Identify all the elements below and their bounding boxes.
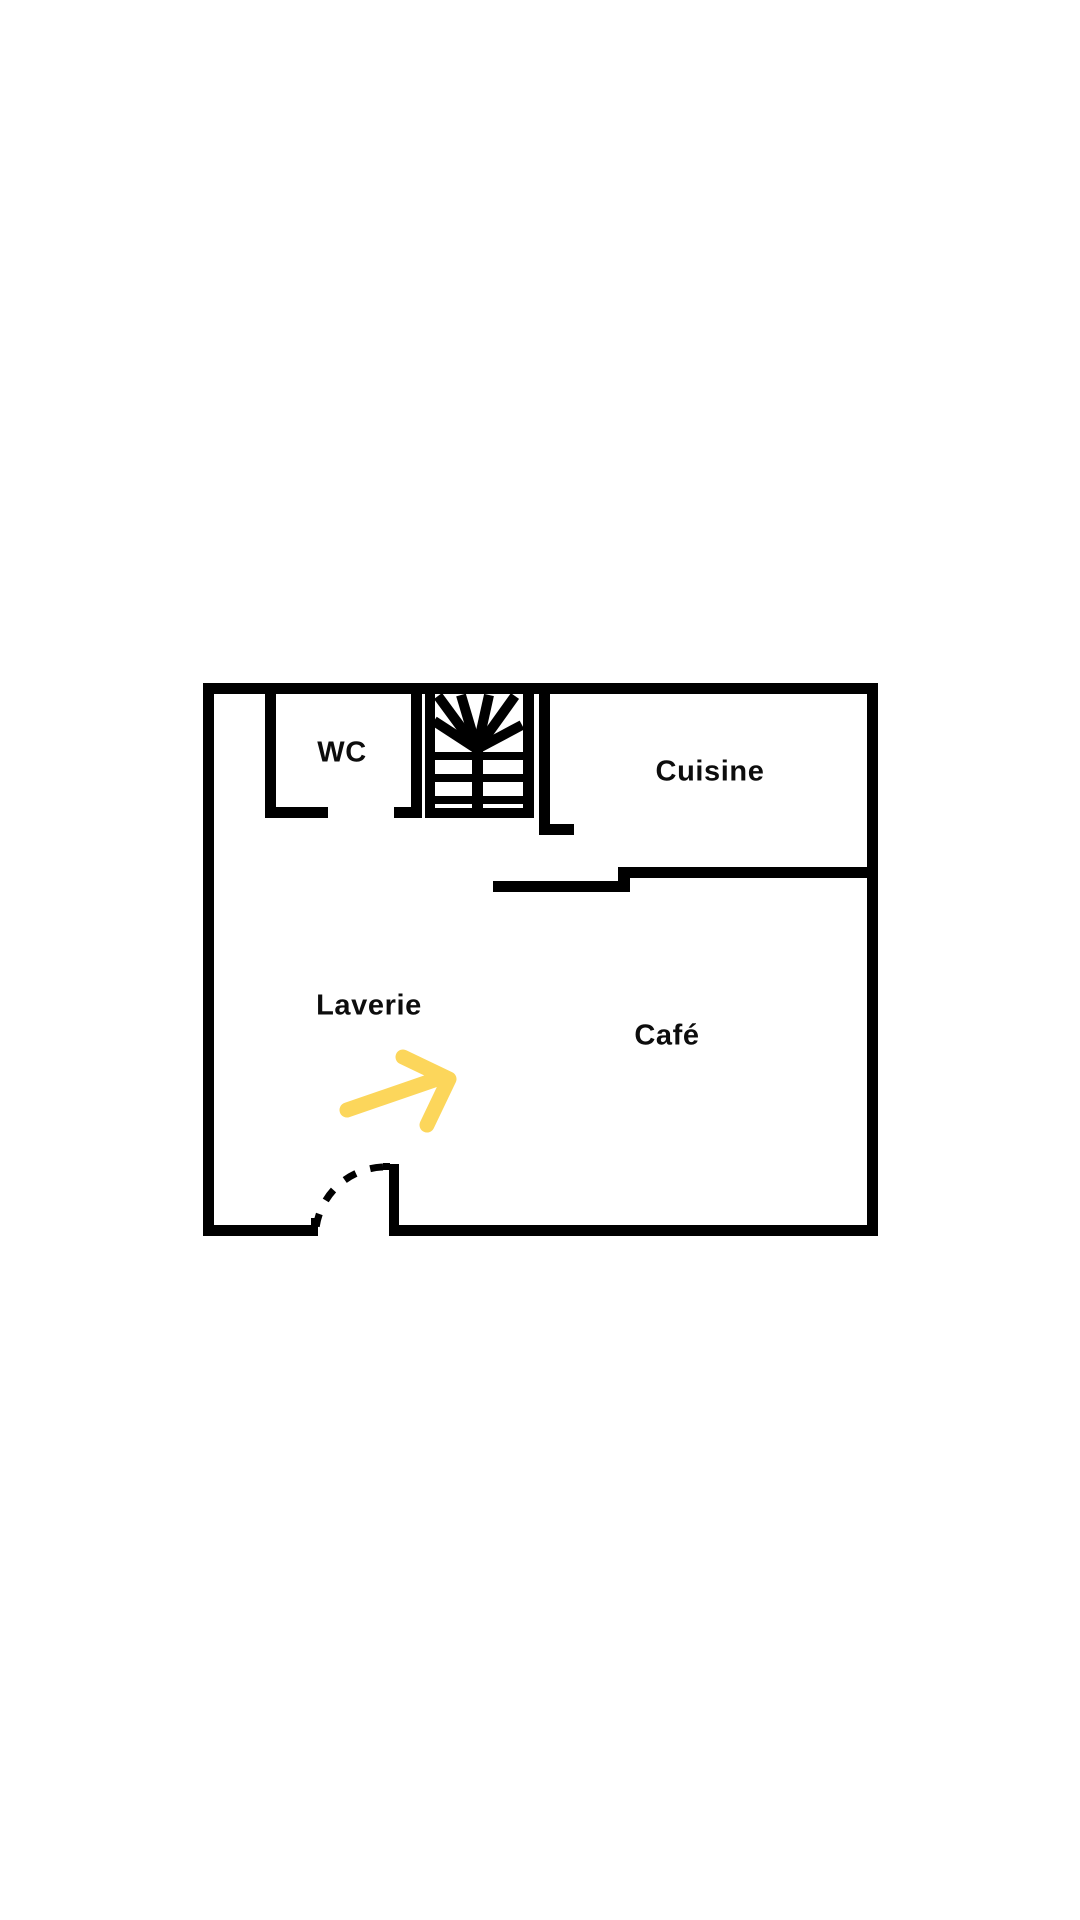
wall-segment bbox=[203, 683, 214, 1236]
room-label-cuisine: Cuisine bbox=[656, 756, 765, 789]
floor-plan-drawing bbox=[0, 0, 1080, 1920]
wall-segment bbox=[867, 683, 878, 1236]
wall-segment bbox=[389, 1225, 878, 1236]
floor-plan-canvas: WC Cuisine Laverie Café bbox=[0, 0, 1080, 1920]
door-leaf-tick bbox=[383, 1163, 390, 1170]
room-label-cafe: Café bbox=[634, 1020, 699, 1053]
wall-segment bbox=[539, 694, 550, 834]
room-label-laverie: Laverie bbox=[316, 990, 422, 1023]
wall-segment bbox=[618, 867, 868, 878]
wall-segment bbox=[265, 807, 328, 818]
room-label-wc: WC bbox=[317, 737, 367, 770]
door-leaf bbox=[389, 1164, 399, 1236]
wall-segment bbox=[203, 1225, 318, 1236]
wall-segment bbox=[411, 694, 422, 818]
wall-segment bbox=[203, 683, 878, 694]
wall-segment bbox=[425, 694, 435, 818]
wall-segment bbox=[394, 807, 422, 818]
direction-arrow-shaft-icon bbox=[347, 1079, 437, 1110]
wall-segment bbox=[523, 694, 534, 818]
wall-segment bbox=[265, 694, 276, 818]
stair-tread-line bbox=[435, 796, 523, 804]
door-swing-arc bbox=[316, 1167, 383, 1228]
wall-segment bbox=[539, 824, 574, 835]
stair-tread-line bbox=[435, 774, 523, 782]
stair-tread-line bbox=[435, 752, 523, 760]
wall-segment bbox=[493, 881, 630, 892]
